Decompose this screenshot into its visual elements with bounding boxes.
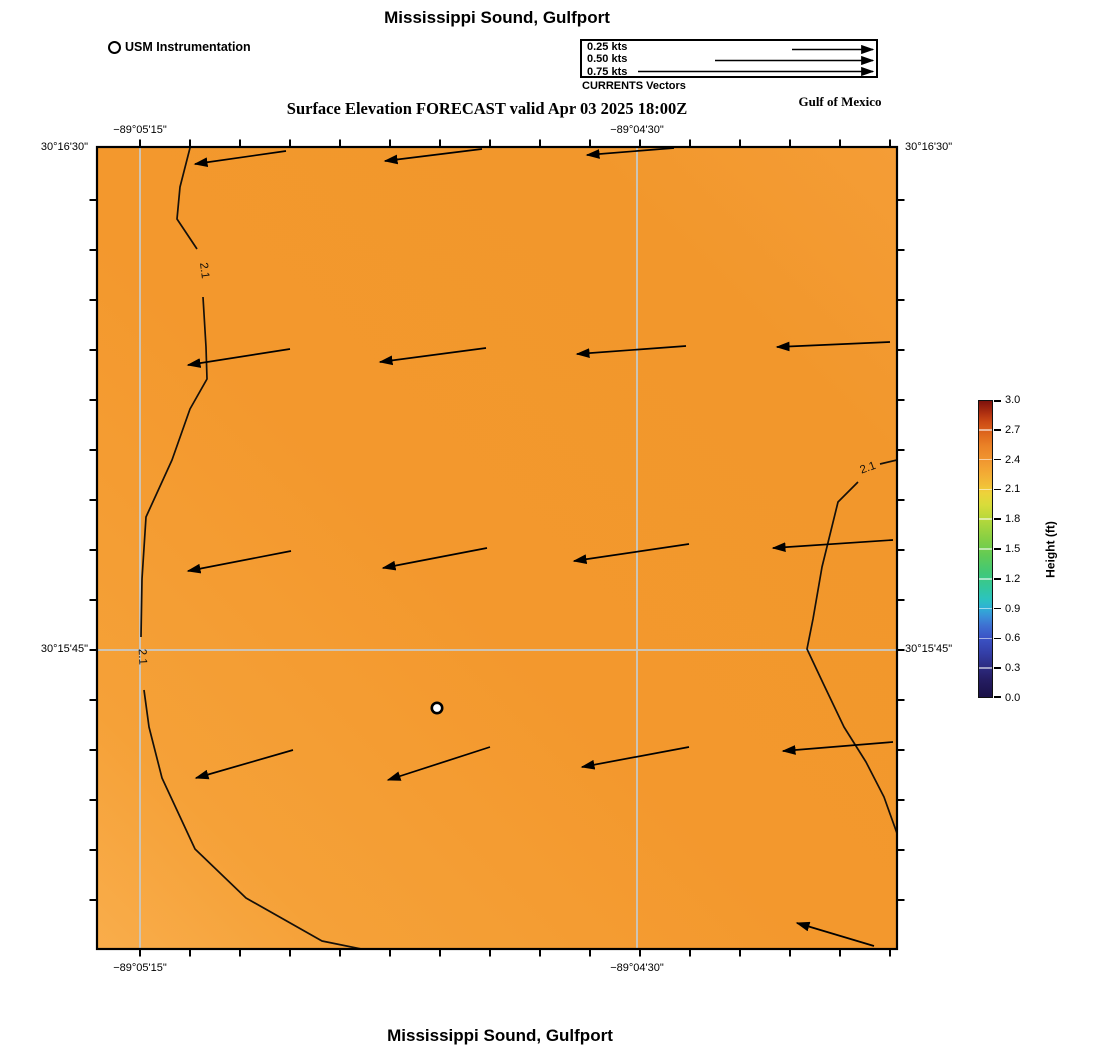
colorbar-tick-label: 1.2: [1005, 573, 1020, 585]
colorbar-tick: [994, 696, 1001, 698]
axis-label-lon-top-right: −89°04'30": [592, 124, 682, 136]
colorbar-tick: [994, 489, 1001, 491]
colorbar-tick: [994, 608, 1001, 610]
currents-vector-legend: 0.25 kts 0.50 kts 0.75 kts: [580, 39, 878, 78]
colorbar-level-line: [979, 489, 992, 491]
colorbar-tick-label: 0.0: [1005, 692, 1020, 704]
colorbar-tick: [994, 578, 1001, 580]
colorbar-tick-label: 0.3: [1005, 662, 1020, 674]
region-label: Gulf of Mexico: [798, 94, 881, 110]
colorbar-level-line: [979, 578, 992, 580]
colorbar: 3.02.72.42.11.81.51.20.90.60.30.0: [978, 400, 993, 698]
forecast-subtitle: Surface Elevation FORECAST valid Apr 03 …: [287, 99, 687, 119]
contour-label: 2.1: [197, 262, 211, 279]
axis-label-lon-bottom-right: −89°04'30": [592, 962, 682, 974]
colorbar-title: Height (ft): [1044, 508, 1059, 592]
vector-scale-arrows: [582, 41, 876, 76]
contour-label: 2.1: [136, 649, 149, 666]
colorbar-tick-label: 0.9: [1005, 603, 1020, 615]
axis-label-lat-right-top: 30°16'30": [905, 141, 952, 153]
colorbar-tick-label: 1.8: [1005, 513, 1020, 525]
page-title-bottom: Mississippi Sound, Gulfport: [387, 1026, 613, 1046]
instrument-station-marker: [432, 703, 442, 713]
colorbar-tick: [994, 429, 1001, 431]
axis-label-lat-left-bottom: 30°15'45": [26, 643, 88, 655]
page-title: Mississippi Sound, Gulfport: [384, 8, 610, 28]
colorbar-tick: [994, 638, 1001, 640]
colorbar-level-line: [979, 638, 992, 640]
colorbar-level-line: [979, 518, 992, 520]
colorbar-tick: [994, 400, 1001, 402]
colorbar-tick: [994, 548, 1001, 550]
axis-label-lat-right-bottom: 30°15'45": [905, 643, 952, 655]
colorbar-level-line: [979, 459, 992, 461]
colorbar-level-line: [979, 429, 992, 431]
colorbar-tick: [994, 459, 1001, 461]
colorbar-tick-label: 2.4: [1005, 454, 1020, 466]
map-plot: 2.12.12.1: [87, 137, 907, 959]
instrument-legend-label: USM Instrumentation: [125, 40, 251, 54]
colorbar-level-line: [979, 608, 992, 610]
colorbar-tick-label: 2.1: [1005, 483, 1020, 495]
colorbar-level-line: [979, 667, 992, 669]
colorbar-tick-label: 1.5: [1005, 543, 1020, 555]
axis-label-lon-top-left: −89°05'15": [95, 124, 185, 136]
axis-label-lat-left-top: 30°16'30": [26, 141, 88, 153]
instrument-marker-icon: [108, 41, 121, 54]
colorbar-level-line: [979, 548, 992, 550]
forecast-figure: Mississippi Sound, Gulfport USM Instrume…: [0, 0, 1100, 1050]
colorbar-tick: [994, 518, 1001, 520]
axis-label-lon-bottom-left: −89°05'15": [95, 962, 185, 974]
colorbar-tick: [994, 667, 1001, 669]
vector-legend-caption: CURRENTS Vectors: [582, 80, 686, 92]
colorbar-tick-label: 2.7: [1005, 424, 1020, 436]
colorbar-tick-label: 0.6: [1005, 632, 1020, 644]
colorbar-tick-label: 3.0: [1005, 394, 1020, 406]
